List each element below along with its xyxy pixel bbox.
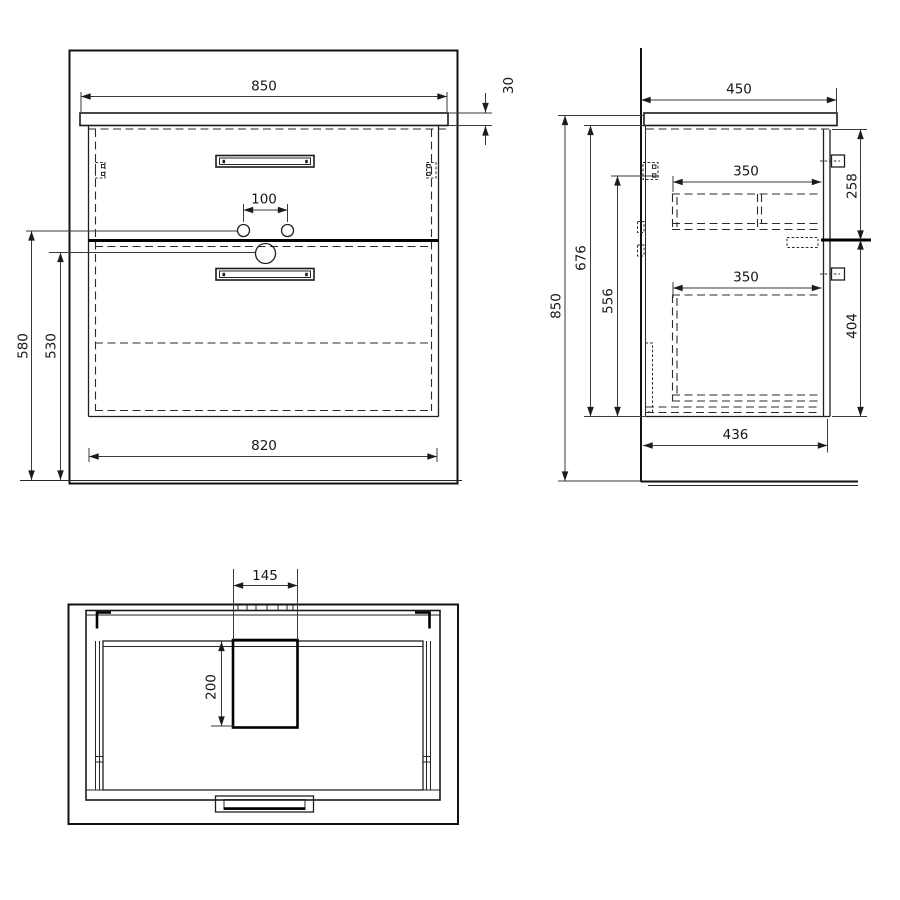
dim-countertop-depth: 450	[641, 82, 837, 113]
drawer-slide-left	[96, 641, 104, 790]
dim-label-drain-height: 530	[44, 333, 60, 359]
dim-faucet-spacing: 100	[244, 192, 288, 223]
lower-drawer-hidden-outline	[646, 295, 821, 413]
front-view: 850 30 100 580 530 820	[16, 51, 518, 484]
dim-label-upper-drawer-height: 258	[845, 173, 861, 199]
dim-upper-drawer-depth: 350	[673, 164, 822, 193]
dim-label-mount-height: 556	[601, 288, 617, 314]
dim-cabinet-depth: 436	[643, 419, 828, 453]
dim-label-cutout-depth: 200	[204, 674, 220, 700]
drawer-slide-right	[423, 641, 431, 790]
dim-supply-height: 580	[16, 231, 32, 480]
dim-label-cabinet-width: 820	[251, 438, 277, 454]
countertop-plan-outline	[69, 605, 459, 825]
dim-label-supply-height: 580	[16, 333, 32, 359]
dim-label-upper-drawer-depth: 350	[733, 164, 759, 180]
siphon-cutout	[233, 640, 298, 728]
faucet-hole-right	[282, 225, 294, 237]
dim-upper-drawer-height: 258	[832, 130, 867, 241]
drawer-stop-hidden	[787, 238, 818, 248]
dim-mount-height: 556	[601, 176, 660, 417]
dim-label-countertop-depth: 450	[726, 82, 752, 98]
dim-label-faucet-spacing: 100	[251, 192, 277, 208]
hidden-edges	[95, 129, 432, 411]
dim-label-cabinet-height: 676	[574, 245, 590, 271]
drawer-box-plan	[103, 641, 423, 790]
dim-label-countertop-thickness: 30	[501, 77, 517, 94]
countertop-profile	[644, 113, 837, 126]
wall-panel-outline	[70, 51, 458, 484]
upper-drawer-hidden-outline	[672, 194, 821, 230]
dim-lower-drawer-depth: 350	[673, 270, 822, 299]
mounting-bracket-left	[96, 163, 106, 179]
drawer-handle-lower	[216, 269, 314, 281]
back-panel-hidden	[646, 343, 653, 412]
dim-label-lower-drawer-depth: 350	[733, 270, 759, 286]
countertop	[80, 113, 448, 126]
dim-cutout-depth: 200	[204, 642, 234, 727]
top-view: 145 200	[69, 568, 459, 824]
faucet-hole-left	[238, 225, 250, 237]
dim-label-cabinet-depth: 436	[723, 427, 749, 443]
dim-total-height: 850	[549, 116, 644, 482]
handle-plan	[216, 796, 314, 812]
drawer-handle-upper	[216, 156, 314, 168]
dim-label-cutout-width: 145	[252, 568, 278, 584]
dim-label-lower-drawer-height: 404	[845, 313, 861, 339]
dim-cabinet-height: 676	[574, 126, 646, 417]
dim-label-countertop-width: 850	[251, 79, 277, 95]
dim-countertop-width: 850	[81, 79, 447, 113]
dim-cabinet-width: 820	[89, 438, 437, 462]
dim-drain-height: 530	[44, 253, 61, 481]
vanity-cabinet-drawing: 850 30 100 580 530 820	[0, 0, 900, 900]
dim-label-total-height: 850	[549, 293, 565, 319]
side-view: 450 850 676 556 258 404	[549, 48, 872, 486]
technical-drawing-page: 850 30 100 580 530 820	[0, 0, 900, 900]
dim-lower-drawer-height: 404	[832, 240, 867, 417]
